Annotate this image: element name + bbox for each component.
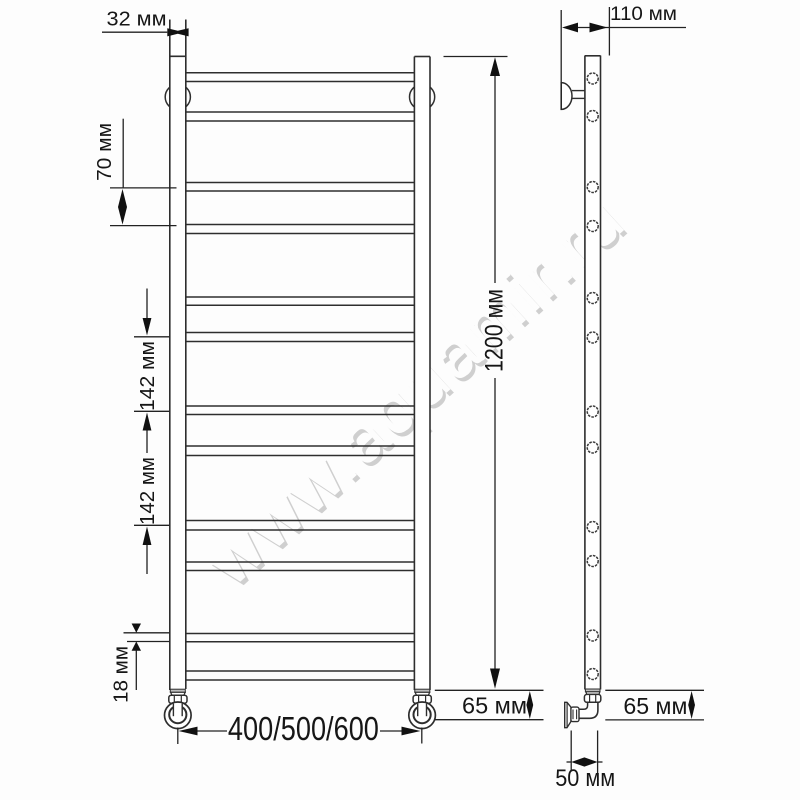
svg-text:142 мм: 142 мм (137, 457, 159, 525)
svg-text:70 мм: 70 мм (94, 123, 116, 181)
svg-text:18 мм: 18 мм (111, 646, 133, 703)
svg-text:400/500/600: 400/500/600 (228, 710, 379, 747)
svg-text:65 мм: 65 мм (623, 693, 687, 719)
svg-text:110 мм: 110 мм (610, 3, 677, 25)
svg-text:1200 мм: 1200 мм (481, 289, 509, 372)
svg-text:32 мм: 32 мм (107, 9, 167, 31)
svg-text:50 мм: 50 мм (555, 765, 615, 792)
svg-text:65 мм: 65 мм (462, 693, 527, 719)
svg-text:142 мм: 142 мм (137, 341, 159, 411)
